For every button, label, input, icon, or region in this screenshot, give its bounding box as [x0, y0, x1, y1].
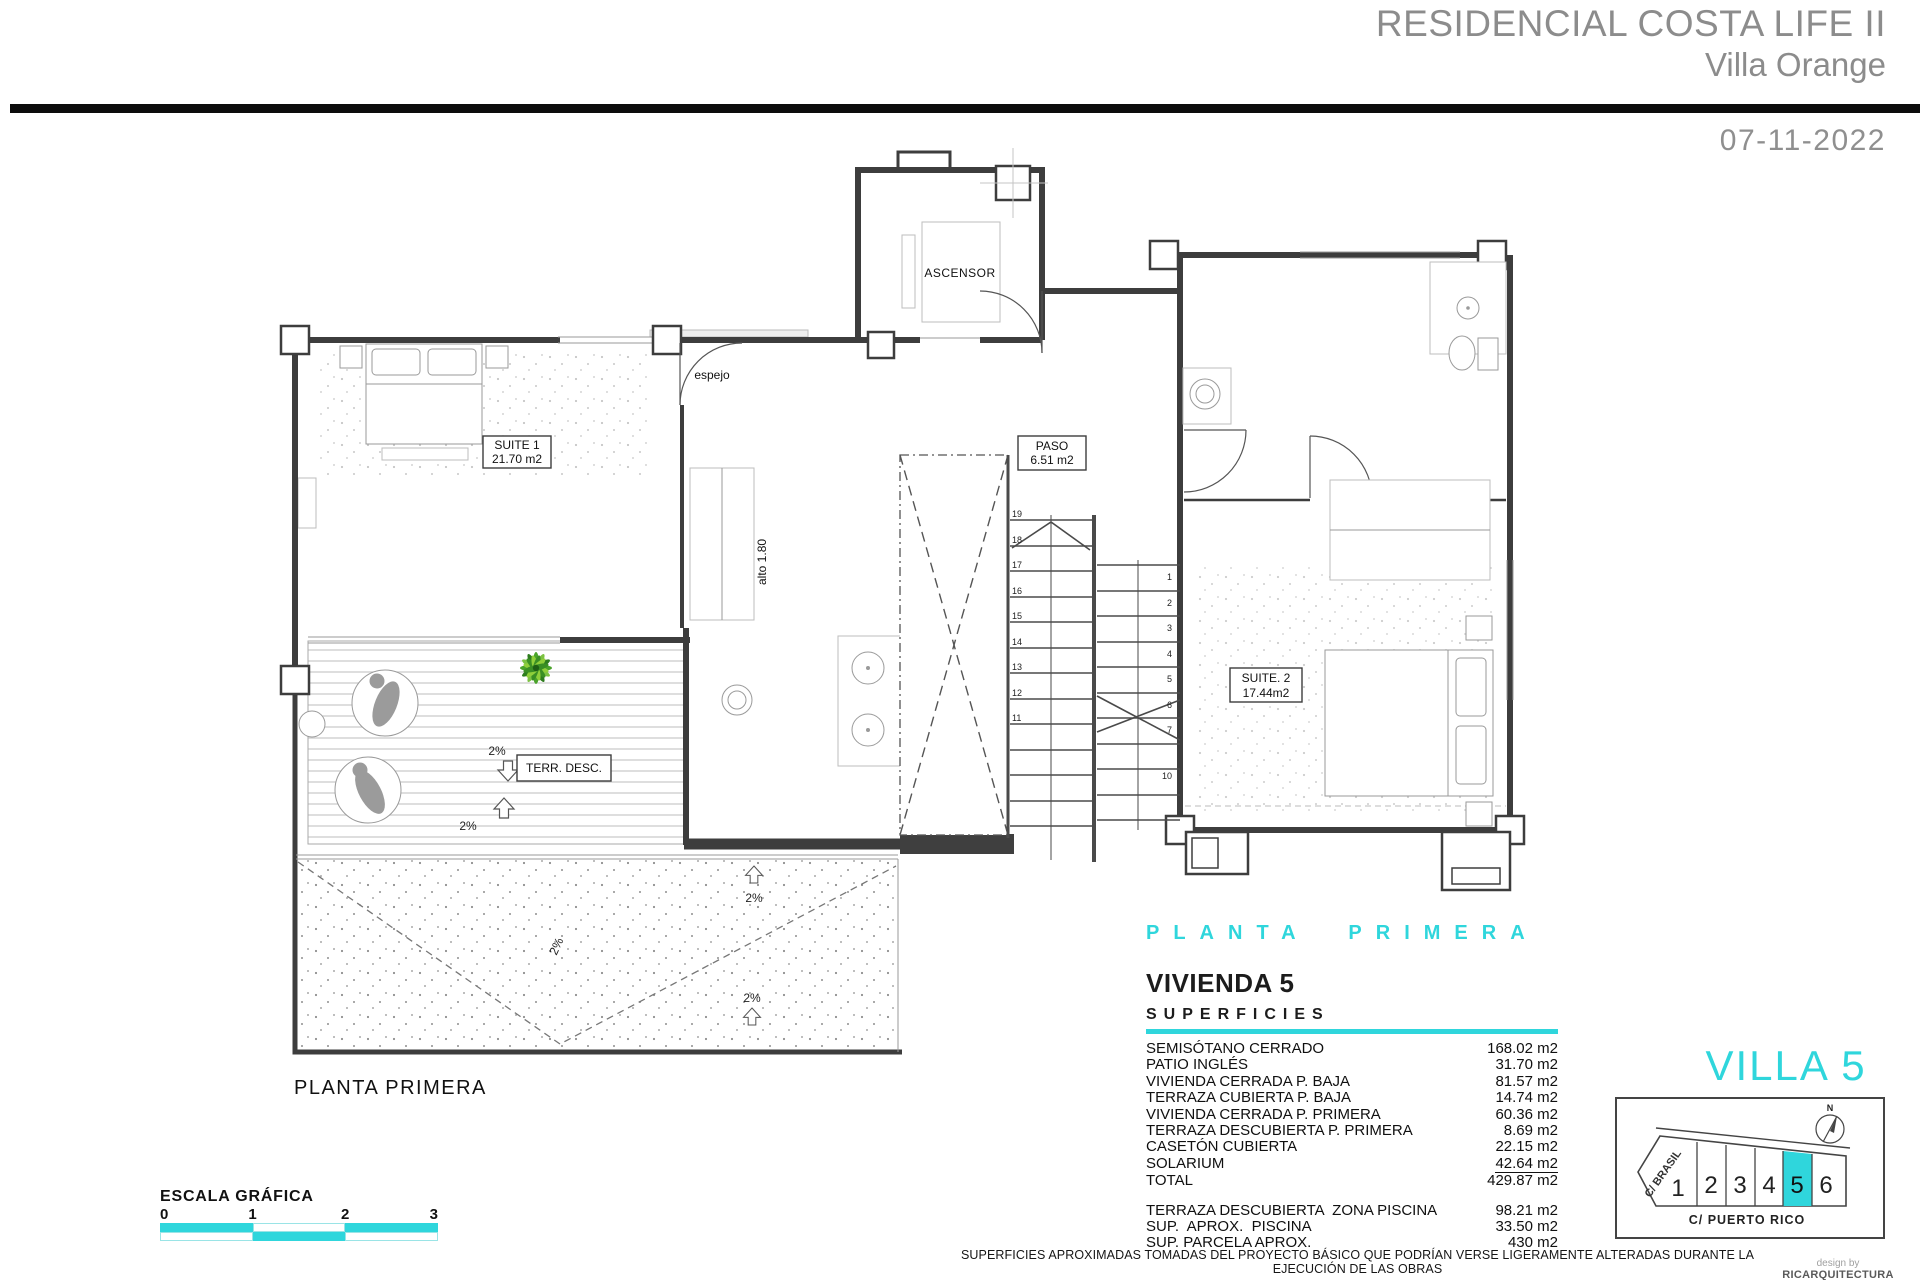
svg-text:5: 5	[1167, 674, 1172, 684]
plan-sheet: RESIDENCIAL COSTA LIFE II Villa Orange 0…	[0, 0, 1920, 1280]
areas-table-extra: TERRAZA DESCUBIERTA ZONA PISCINA98.21 m2…	[1146, 1203, 1558, 1252]
washbasin-bowl	[728, 691, 746, 709]
svg-text:2%: 2%	[743, 991, 761, 1005]
svg-text:7: 7	[1167, 725, 1172, 735]
svg-text:18: 18	[1012, 535, 1022, 545]
column	[1150, 241, 1178, 269]
plot-number: 3	[1733, 1172, 1746, 1199]
svg-text:19: 19	[1012, 509, 1022, 519]
svg-text:2: 2	[1167, 598, 1172, 608]
plan-caption: PLANTA PRIMERA	[294, 1077, 487, 1099]
column	[281, 326, 309, 354]
project-subtitle: Villa Orange	[1376, 46, 1886, 84]
scale-ticks: 0 1 2 3	[160, 1206, 438, 1223]
table-row: SOLARIUM42.64 m2	[1146, 1156, 1558, 1173]
column	[653, 326, 681, 354]
title-block: RESIDENCIAL COSTA LIFE II Villa Orange	[1376, 2, 1886, 84]
suite2-furniture	[1325, 480, 1493, 826]
villa-locator: VILLA 5 N 1 2 3 4 5 6 C/ BRASIL C/ PUERT…	[1600, 1030, 1900, 1250]
toilet-tank	[1478, 338, 1498, 370]
void-shaft	[900, 455, 1008, 835]
scale-bar	[160, 1223, 438, 1241]
sheet-date: 07-11-2022	[1720, 124, 1886, 158]
section-title: SUPERFICIES	[1146, 1006, 1558, 1024]
nightstand	[340, 346, 362, 368]
svg-text:15: 15	[1012, 611, 1022, 621]
street-bottom-label: C/ PUERTO RICO	[1689, 1213, 1806, 1227]
bench	[382, 448, 468, 460]
svg-text:6.51 m2: 6.51 m2	[1030, 453, 1074, 467]
table-row: TERRAZA CUBIERTA P. BAJA14.74 m2	[1146, 1090, 1558, 1106]
table-row: CASETÓN CUBIERTA22.15 m2	[1146, 1139, 1558, 1155]
staircase: 19 18 17 16 15 14 13 12 11 1 2 3 4 5 6 7…	[1008, 455, 1180, 862]
pillow	[1456, 658, 1486, 716]
nightstand	[486, 346, 508, 368]
nightstand	[1466, 802, 1492, 826]
svg-text:12: 12	[1012, 688, 1022, 698]
elevator: ASCENSOR	[858, 148, 1048, 358]
stair-numbers-left: 19 18 17 16 15 14 13 12 11	[1012, 509, 1022, 723]
svg-text:13: 13	[1012, 662, 1022, 672]
side-table	[299, 711, 325, 737]
svg-text:SUITE 1: SUITE 1	[494, 438, 540, 452]
pillow	[372, 349, 420, 375]
svg-text:11: 11	[1012, 713, 1021, 723]
nightstand	[1466, 616, 1492, 640]
areas-summary: PLANTA PRIMERA VIVIENDA 5 SUPERFICIES SE…	[1146, 922, 1558, 1252]
alto-label: alto 1.80	[755, 539, 769, 585]
svg-text:16: 16	[1012, 586, 1022, 596]
table-row: SEMISÓTANO CERRADO168.02 m2	[1146, 1041, 1558, 1057]
svg-text:6: 6	[1167, 700, 1172, 710]
svg-text:PASO: PASO	[1036, 439, 1068, 453]
svg-text:1: 1	[1167, 572, 1172, 582]
svg-text:2%: 2%	[488, 744, 506, 758]
right-bathroom	[1183, 262, 1506, 424]
areas-table: SEMISÓTANO CERRADO168.02 m2 PATIO INGLÉS…	[1146, 1041, 1558, 1190]
table-row: SUP. APROX. PISCINA33.50 m2	[1146, 1219, 1558, 1235]
svg-text:14: 14	[1012, 637, 1022, 647]
center-bath-wardrobe	[690, 468, 902, 766]
plot-number: 6	[1819, 1172, 1832, 1199]
shelf	[298, 478, 316, 528]
svg-text:17: 17	[1012, 560, 1022, 570]
elevator-label: ASCENSOR	[924, 266, 995, 280]
table-row: VIVIENDA CERRADA P. PRIMERA60.36 m2	[1146, 1107, 1558, 1123]
design-credit: design by RICARQUITECTURA	[1772, 1258, 1904, 1280]
table-row: TERRAZA DESCUBIERTA P. PRIMERA8.69 m2	[1146, 1123, 1558, 1139]
project-title: RESIDENCIAL COSTA LIFE II	[1376, 2, 1886, 46]
svg-text:3: 3	[1167, 623, 1172, 633]
svg-text:SUITE. 2: SUITE. 2	[1242, 671, 1291, 685]
table-row: VIVIENDA CERRADA P. BAJA81.57 m2	[1146, 1074, 1558, 1090]
disclaimer-text: SUPERFICIES APROXIMADAS TOMADAS DEL PROY…	[935, 1248, 1780, 1276]
stair-numbers-right: 1 2 3 4 5 6 7 10	[1162, 572, 1172, 781]
svg-text:2%: 2%	[745, 891, 763, 905]
floor-heading: PLANTA PRIMERA	[1146, 922, 1558, 945]
plot-number: 2	[1704, 1172, 1717, 1199]
pillow	[1456, 726, 1486, 784]
table-row-total: TOTAL429.87 m2	[1146, 1173, 1558, 1189]
plot-number-highlighted: 5	[1790, 1172, 1803, 1199]
plot-number: 1	[1671, 1175, 1684, 1202]
svg-text:2%: 2%	[459, 819, 477, 833]
table-row: TERRAZA DESCUBIERTA ZONA PISCINA98.21 m2	[1146, 1203, 1558, 1219]
scale-title: ESCALA GRÁFICA	[160, 1188, 438, 1206]
svg-text:4: 4	[1167, 649, 1172, 659]
unit-title: VIVIENDA 5	[1146, 968, 1558, 999]
villa-title: VILLA 5	[1705, 1042, 1866, 1089]
toilet	[1449, 336, 1475, 370]
pillow	[428, 349, 476, 375]
svg-text:17.44m2: 17.44m2	[1243, 686, 1290, 700]
svg-text:TERR. DESC.: TERR. DESC.	[526, 761, 602, 775]
espejo-label: espejo	[694, 368, 730, 382]
north-label: N	[1827, 1103, 1834, 1113]
plot-number: 4	[1762, 1172, 1775, 1199]
cyan-divider	[1146, 1029, 1558, 1034]
header-rule	[10, 104, 1920, 113]
graphic-scale: ESCALA GRÁFICA 0 1 2 3	[160, 1188, 438, 1241]
svg-text:21.70 m2: 21.70 m2	[492, 452, 542, 466]
column	[281, 666, 309, 694]
svg-text:10: 10	[1162, 771, 1172, 781]
table-row: PATIO INGLÉS31.70 m2	[1146, 1057, 1558, 1073]
column	[868, 332, 894, 358]
